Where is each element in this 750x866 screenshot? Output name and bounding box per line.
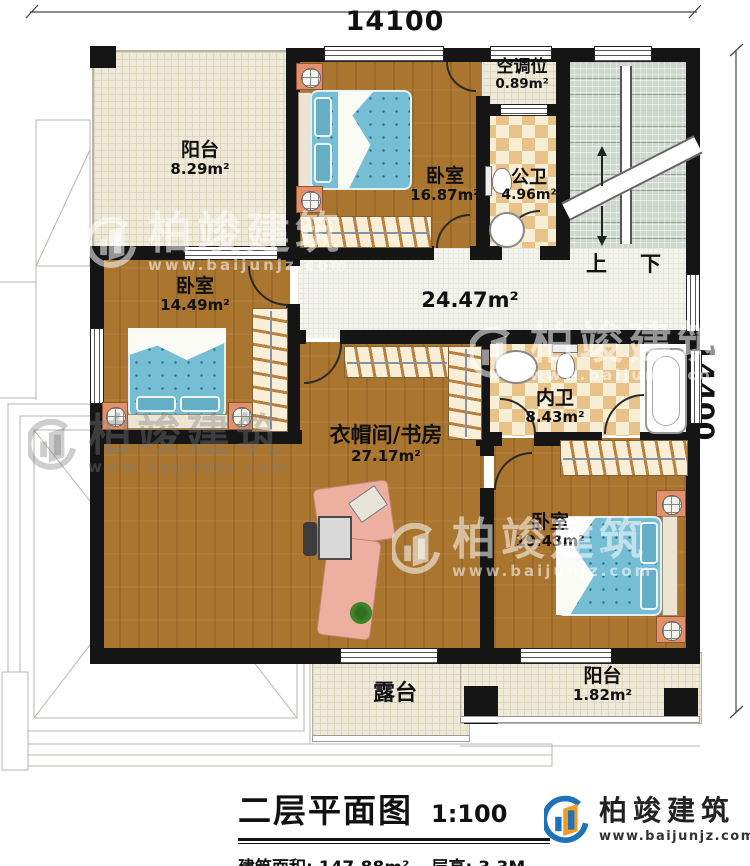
nightstand: [296, 186, 323, 213]
brand-text: 柏竣建筑 www.baijunjz.com: [599, 797, 750, 844]
wardrobe-rod: [270, 311, 272, 429]
window: [500, 104, 548, 116]
wardrobe: [560, 440, 688, 476]
title-info-row: 建筑面积: 147.88m² 层高: 3.3M: [238, 853, 550, 866]
balcony-railing: [460, 716, 700, 723]
potted-plant: [350, 602, 372, 624]
stair-down-label: 下: [640, 248, 661, 278]
floor-height: 层高: 3.3M: [432, 853, 526, 866]
bed-pillow: [640, 522, 658, 564]
room-label-balcony-top: 阳台8.29m²: [130, 140, 270, 178]
window: [340, 648, 438, 664]
room-label-bath-public: 公卫4.96m²: [492, 168, 566, 204]
bed-pillow: [314, 143, 332, 183]
wall-segment: [286, 304, 300, 444]
floor-plan-canvas: 14100 14400: [0, 0, 750, 866]
stair-up-label: 上: [586, 248, 607, 278]
wall-segment: [540, 246, 570, 260]
window: [520, 648, 612, 664]
bed-pillow: [136, 396, 176, 412]
wall-segment: [90, 246, 186, 260]
room-label-bedroom-bottom: 卧室19.43m²: [495, 512, 605, 550]
brand-name: 柏竣建筑: [599, 797, 750, 825]
toilet-tank: [552, 344, 578, 353]
wall-segment: [286, 330, 306, 344]
drawing-scale: 1:100: [431, 800, 507, 828]
nightstand: [102, 402, 128, 430]
terrace-railing: [312, 735, 470, 742]
wall-corner-post: [90, 46, 116, 68]
stair-railing: [620, 66, 632, 244]
nightstand: [296, 63, 323, 90]
window: [184, 246, 278, 260]
stair-up-arrow-stem: [601, 156, 603, 186]
wardrobe: [252, 308, 288, 432]
lamp-icon: [301, 191, 321, 211]
stair-up-arrow: [597, 146, 607, 156]
wall-segment: [480, 446, 494, 456]
nightstand: [656, 490, 686, 517]
title-row: 二层平面图 1:100: [238, 784, 550, 841]
lamp-icon: [662, 495, 682, 515]
room-label-ac: 空调位0.89m²: [482, 58, 562, 92]
bed-pillow: [314, 97, 332, 137]
window: [90, 328, 104, 404]
stair-down-arrow: [597, 236, 607, 246]
room-label-bath-inner: 内卫8.43m²: [505, 388, 605, 426]
wardrobe-rod: [303, 232, 429, 234]
room-label-bedroom-left: 卧室14.49m²: [130, 276, 260, 314]
hallway-area-label: 24.47m²: [390, 288, 550, 312]
window: [324, 46, 444, 62]
brand-logo-icon: [544, 792, 592, 848]
brand-logo: 柏竣建筑 www.baijunjz.com: [544, 792, 750, 848]
wardrobe: [300, 216, 432, 248]
wall-segment: [340, 330, 690, 344]
wall-segment: [612, 648, 700, 664]
wall-segment: [438, 648, 522, 664]
toilet: [556, 353, 575, 379]
nightstand: [228, 402, 254, 430]
stair-down-arrow-stem: [601, 206, 603, 236]
wardrobe-rod: [347, 362, 447, 364]
sink: [489, 212, 525, 248]
window: [690, 350, 702, 424]
desk-chair: [303, 522, 317, 556]
brand-url: www.baijunjz.com: [599, 829, 750, 844]
lamp-icon: [301, 68, 321, 88]
nightstand: [656, 616, 686, 643]
title-block: 二层平面图 1:100 建筑面积: 147.88m² 层高: 3.3M: [238, 784, 550, 866]
window: [594, 46, 652, 62]
bed-pillow: [180, 396, 220, 412]
wall-segment: [90, 648, 342, 664]
wall-segment: [278, 246, 434, 260]
building-area: 建筑面积: 147.88m²: [238, 853, 410, 866]
wall-segment: [286, 246, 300, 266]
wall-segment: [90, 444, 104, 664]
bed-headboard: [126, 414, 228, 429]
lamp-icon: [662, 621, 682, 641]
wardrobe: [344, 346, 450, 378]
page-title: 二层平面图: [238, 784, 413, 832]
wall-segment: [470, 246, 502, 260]
lamp-icon: [106, 407, 126, 427]
dimension-top: 14100: [320, 6, 470, 37]
wall-segment: [480, 488, 494, 660]
bed-pillow: [640, 568, 658, 610]
window: [686, 274, 700, 332]
room-label-terrace: 露台: [330, 682, 460, 707]
wall-segment: [90, 430, 302, 444]
computer-monitor: [318, 516, 352, 560]
room-label-balcony-bottom: 阳台1.82m²: [540, 666, 665, 704]
sink: [494, 350, 538, 384]
bed-headboard: [662, 516, 678, 616]
bathtub: [645, 348, 687, 434]
lamp-icon: [232, 407, 252, 427]
room-label-study: 衣帽间/书房27.17m²: [300, 424, 472, 464]
wardrobe-rod: [563, 458, 685, 460]
room-label-bedroom-top: 卧室16.87m²: [390, 166, 500, 204]
